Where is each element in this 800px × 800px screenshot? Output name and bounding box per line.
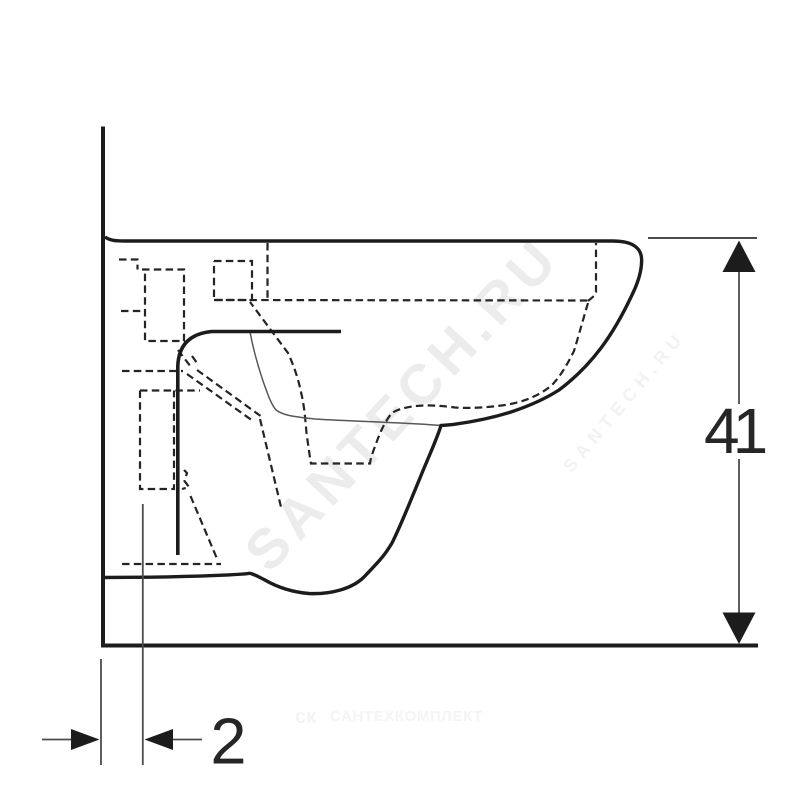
svg-text:ск: ск bbox=[295, 706, 317, 728]
svg-text:41: 41 bbox=[704, 395, 766, 467]
svg-text:САНТЕХКОМПЛЕКТ: САНТЕХКОМПЛЕКТ bbox=[330, 708, 483, 725]
svg-text:2: 2 bbox=[210, 705, 246, 778]
